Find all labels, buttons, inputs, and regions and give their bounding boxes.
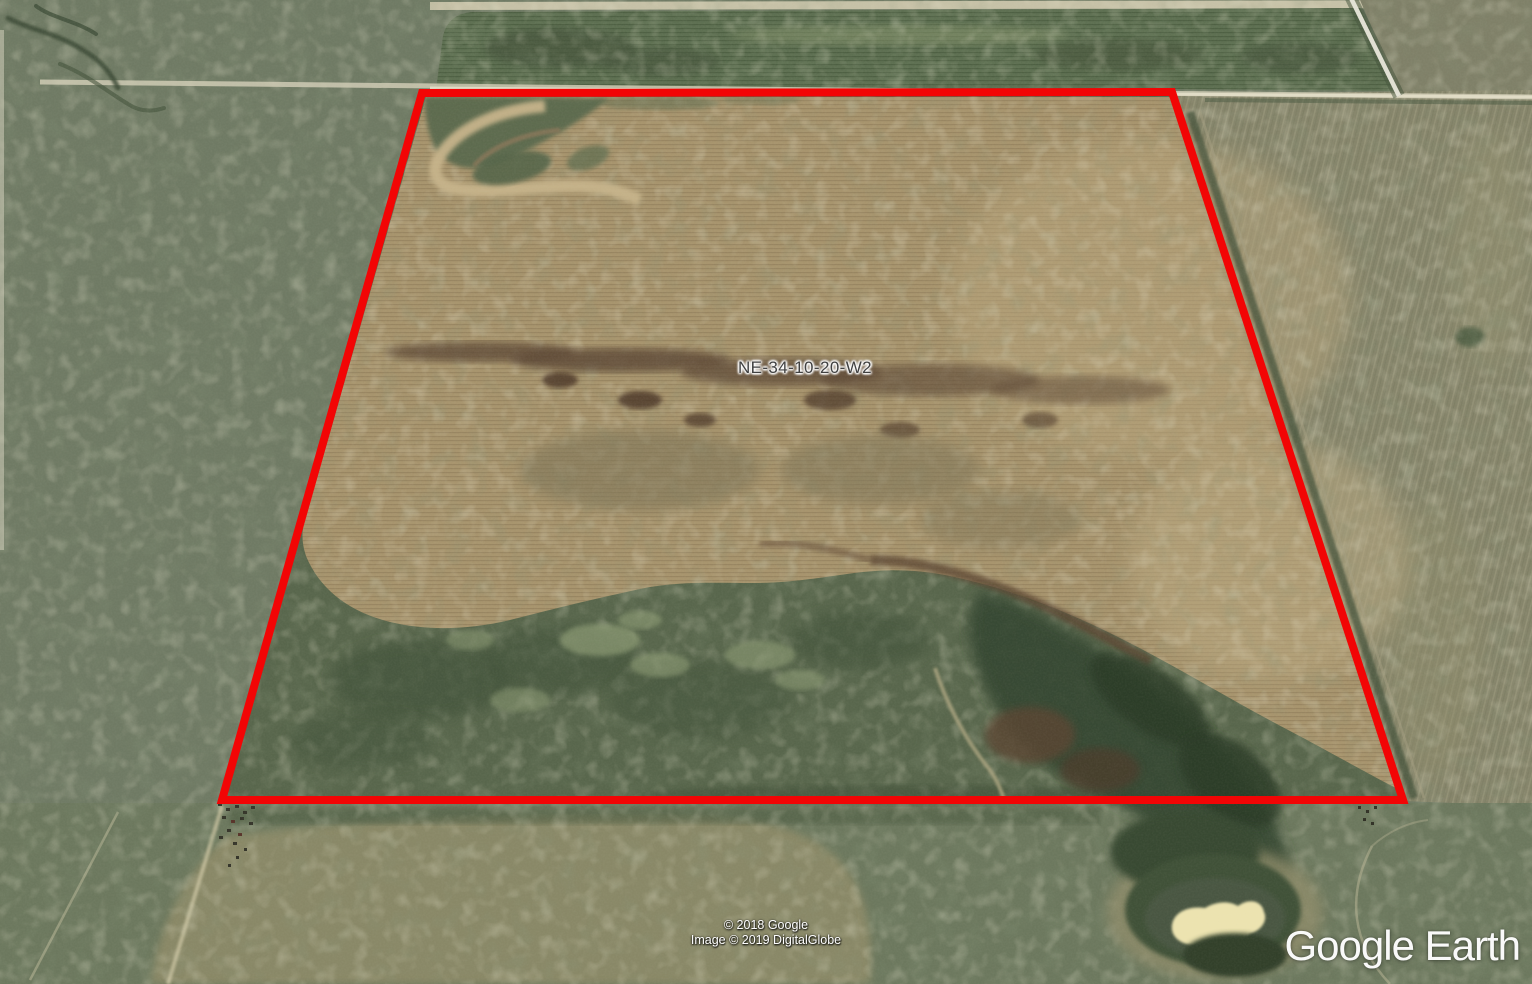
parcel-label: NE-34-10-20-W2 <box>738 358 872 378</box>
google-earth-logo: Google Earth <box>1285 922 1521 970</box>
google-earth-viewport: NE-34-10-20-W2 © 2018 Google Image © 201… <box>0 0 1532 984</box>
satellite-imagery[interactable] <box>0 0 1532 984</box>
